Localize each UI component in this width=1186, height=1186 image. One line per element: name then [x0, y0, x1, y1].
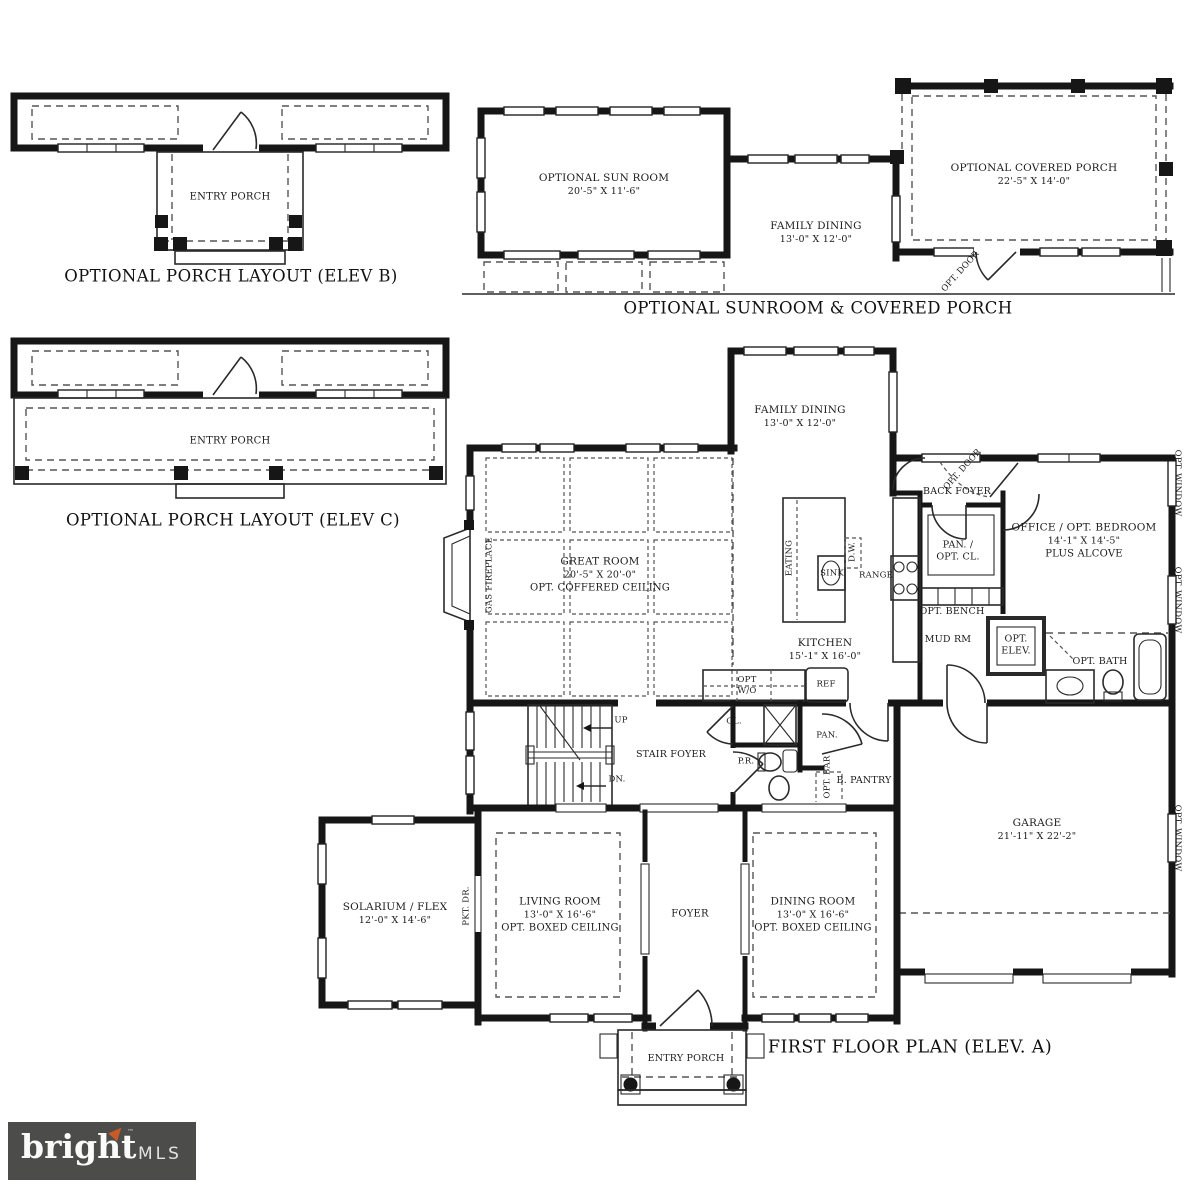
floorplan-page: ENTRY PORCH OPTIONAL PORCH LAYOUT (ELEV … [0, 0, 1186, 1186]
label-pr: P.R. [738, 756, 755, 767]
brightmls-logo: bright ™ MLS [8, 1122, 196, 1180]
label-entry-porch-elev-b: ENTRY PORCH [190, 191, 271, 204]
label-family-dining-sunroom: FAMILY DINING 13'-0" X 12'-0" [770, 220, 862, 246]
label-b-pantry: B. PANTRY [837, 775, 892, 787]
logo-mls-text: MLS [138, 1144, 182, 1164]
label-eating: EATING [784, 540, 795, 576]
label-opt-elev: OPT. ELEV. [1001, 634, 1030, 659]
label-stair-foyer: STAIR FOYER [636, 749, 706, 761]
label-back-foyer: BACK FOYER [923, 486, 991, 498]
label-sink: SINK [820, 568, 844, 579]
label-dw: D.W. [847, 542, 858, 562]
label-gas-fireplace: GAS FIREPLACE [484, 537, 495, 613]
label-opt-window-garage: OPT. WINDOW [1171, 805, 1182, 872]
label-mud-rm: MUD RM [925, 634, 971, 646]
label-great-room: GREAT ROOM 20'-5" X 20'-0" OPT. COFFERED… [530, 556, 670, 595]
label-pkt-dr: PKT. DR. [461, 886, 472, 925]
label-solarium-flex: SOLARIUM / FLEX 12'-0" X 14'-6" [343, 901, 448, 927]
elev-c-plan [14, 341, 446, 498]
label-ref: REF [816, 679, 835, 690]
label-pan-opt-cl: PAN. / OPT. CL. [936, 540, 979, 565]
label-foyer: FOYER [671, 908, 709, 921]
label-opt-window-office-1: OPT. WINDOW [1171, 450, 1182, 517]
label-up: UP [614, 715, 627, 726]
label-living-room: LIVING ROOM 13'-0" X 16'-6" OPT. BOXED C… [501, 896, 619, 935]
elev-b-plan [14, 96, 446, 264]
label-dn: DN. [608, 774, 625, 785]
label-garage: GARAGE 21'-11" X 22'-2" [998, 817, 1077, 843]
label-range: RANGE [859, 570, 893, 581]
label-dining-room: DINING ROOM 13'-0" X 16'-6" OPT. BOXED C… [754, 896, 872, 935]
label-optional-sun-room: OPTIONAL SUN ROOM 20'-5" X 11'-6" [539, 172, 669, 198]
label-entry-porch-elev-c: ENTRY PORCH [190, 435, 271, 448]
logo-trademark: ™ [127, 1128, 134, 1136]
label-kitchen: KITCHEN 15'-1" X 16'-0" [789, 637, 861, 663]
caption-sunroom-covered-porch: OPTIONAL SUNROOM & COVERED PORCH [623, 297, 1012, 318]
label-office-opt-bedroom: OFFICE / OPT. BEDROOM 14'-1" X 14'-5" PL… [1012, 522, 1157, 561]
label-opt-bar: OPT. BAR [822, 756, 833, 799]
label-cl: CL. [726, 716, 741, 727]
caption-elev-c: OPTIONAL PORCH LAYOUT (ELEV C) [66, 509, 400, 530]
label-entry-porch-main: ENTRY PORCH [648, 1053, 725, 1065]
label-optional-covered-porch: OPTIONAL COVERED PORCH 22'-5" X 14'-0" [951, 162, 1118, 188]
label-pan: PAN. [816, 730, 837, 741]
caption-first-floor-plan: FIRST FLOOR PLAN (ELEV. A) [768, 1037, 1052, 1060]
label-family-dining: FAMILY DINING 13'-0" X 12'-0" [754, 404, 846, 430]
caption-elev-b: OPTIONAL PORCH LAYOUT (ELEV B) [64, 265, 398, 286]
label-opt-wo: OPT W/O [737, 675, 756, 697]
label-opt-bath: OPT. BATH [1073, 656, 1128, 668]
label-opt-window-office-2: OPT. WINDOW [1171, 567, 1182, 634]
label-opt-bench: OPT. BENCH [920, 606, 985, 618]
